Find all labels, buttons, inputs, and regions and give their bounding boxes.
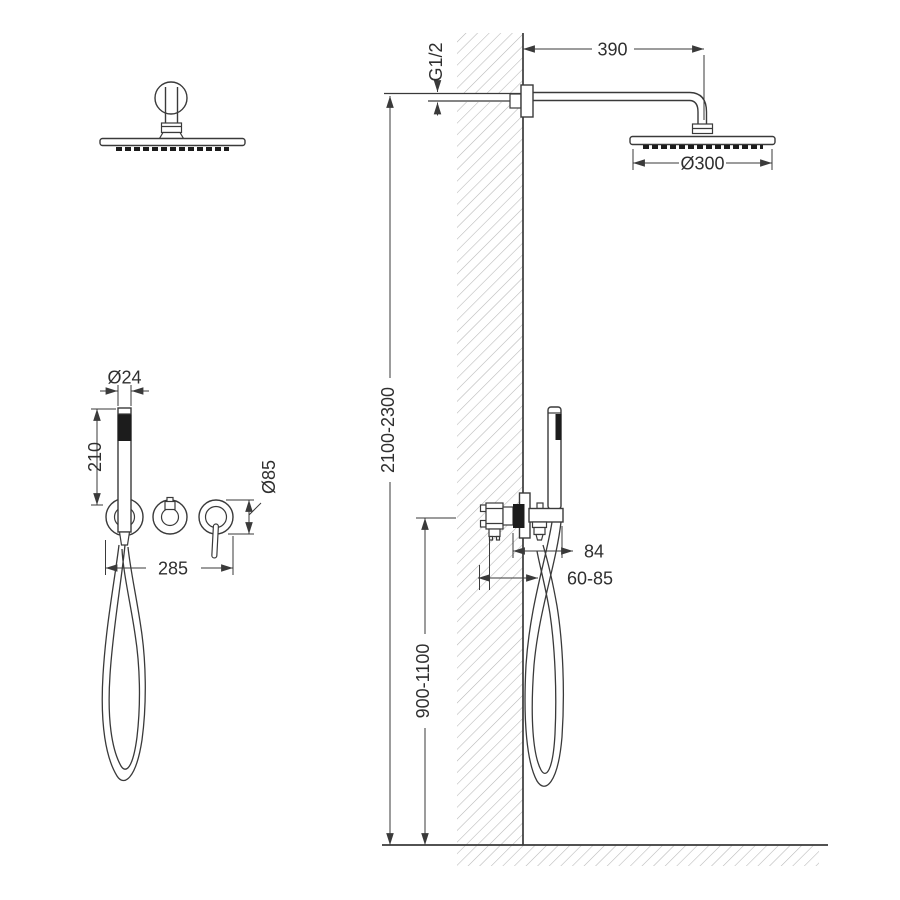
rain-shower-side-view: [384, 85, 775, 147]
valve-neck: [503, 507, 513, 525]
head-diameter-label: Ø300: [680, 154, 724, 174]
rain-head-plate-front: [100, 139, 245, 146]
wall-section: [382, 33, 828, 866]
hose-connector-front: [120, 532, 130, 545]
dimension-head-diameter: Ø300: [633, 149, 772, 174]
handshower-length-label: 210: [85, 442, 105, 472]
holder-clip-tab: [537, 503, 543, 509]
arm-elbow-inner: [690, 101, 698, 125]
handle-grip-texture-front: [118, 415, 132, 442]
valve-bottom-fitting: [489, 529, 500, 537]
dimension-install-height: 2100-2300: [377, 96, 401, 845]
dimension-mixer-height: 900-1100: [413, 518, 456, 845]
hose-connector-taper: [536, 535, 543, 541]
valve-rough-in-body: [486, 503, 503, 529]
hand-shower-side-view: [525, 407, 563, 786]
holder-projection-label: 84: [584, 542, 604, 562]
head-cone-front: [160, 133, 184, 139]
rain-shower-front-view: [100, 82, 245, 149]
arm-wall-fitting: [510, 94, 521, 108]
mixer-height-label: 900-1100: [413, 644, 433, 719]
diverter-knob-base: [165, 502, 175, 510]
dimension-supply-thread: G1/2: [426, 42, 446, 115]
dimension-arm-length: 390: [523, 40, 704, 121]
mixer-lever-handle: [212, 524, 219, 558]
hand-shower-holder-side: [529, 509, 563, 523]
dimension-handshower-diameter: Ø24: [100, 368, 149, 407]
diverter-inner-ring: [162, 509, 179, 526]
technical-drawing-page: 390 G1/2 Ø300 2100-2300 900-1100 84 60-8…: [0, 0, 900, 900]
handshower-diameter-label: Ø24: [107, 368, 141, 388]
wall-hatch: [457, 33, 523, 866]
handle-grip-texture-side: [556, 414, 562, 440]
valve-trim-sleeve: [513, 504, 525, 528]
trim-diameter-label: Ø85: [259, 460, 279, 494]
arm-length-label: 390: [597, 40, 627, 60]
arm-elbow-front-circle: [155, 82, 187, 114]
arm-escutcheon-side: [521, 85, 533, 117]
valve-bottom-foot-left: [490, 537, 493, 541]
dimension-handshower-length: 210: [85, 409, 116, 505]
head-connector-nut-front: [162, 123, 182, 133]
rough-in-depth-label: 60-85: [567, 569, 613, 589]
install-height-label: 2100-2300: [378, 387, 398, 473]
floor-hatch: [523, 845, 819, 866]
supply-thread-label: G1/2: [426, 42, 446, 81]
valve-trim-front-view: [102, 408, 233, 781]
valve-bottom-foot-right: [497, 537, 500, 541]
valve-inlet-tab-bottom: [481, 521, 487, 528]
leader-line: [249, 503, 261, 515]
hose-loop-side-outer: [525, 522, 563, 786]
trim-spacing-label: 285: [158, 559, 188, 579]
shower-installation-diagram: 390 G1/2 Ø300 2100-2300 900-1100 84 60-8…: [0, 0, 900, 900]
hose-connector-collar: [533, 522, 547, 528]
hose-connector-nut-side: [534, 528, 545, 535]
valve-inlet-tab-top: [481, 505, 487, 512]
rain-head-plate-side: [630, 137, 775, 145]
dimension-trim-diameter: Ø85: [226, 460, 279, 534]
